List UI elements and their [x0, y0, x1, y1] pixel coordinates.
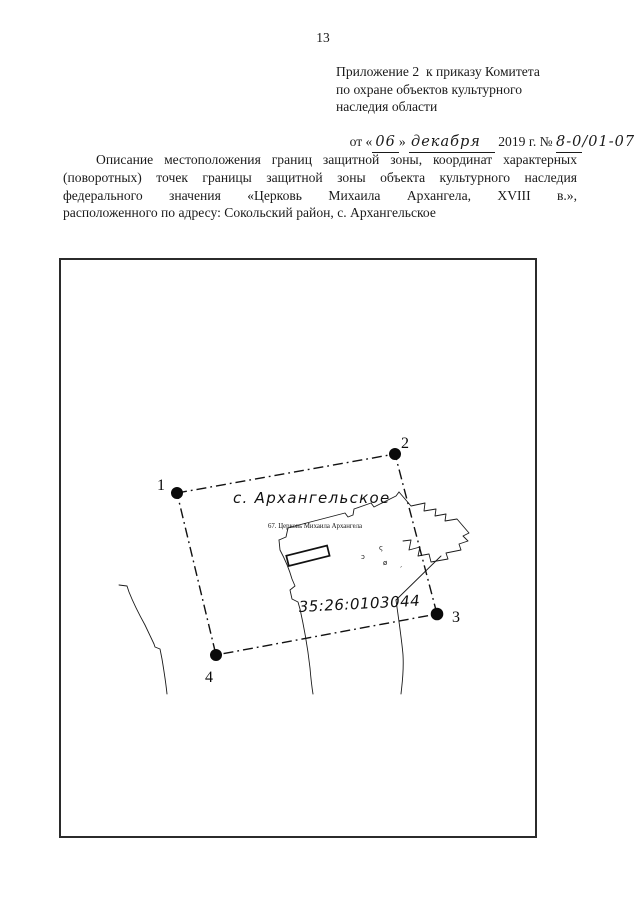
date-prefix: от «: [350, 134, 373, 149]
document-page: { "page": { "number": "13" }, "appendix"…: [0, 0, 640, 905]
description-line: федерального значения «Церковь Михаила А…: [63, 187, 577, 205]
page-number: 13: [0, 30, 640, 46]
map-symbol: ˏ: [399, 560, 403, 568]
village-name-label: с. Архангельское: [233, 489, 391, 507]
boundary-point-4-label: 4: [205, 669, 213, 686]
boundary-point-4-dot: [211, 650, 222, 661]
boundary-point-2-dot: [390, 449, 401, 460]
church-building-footprint: [286, 546, 329, 566]
map-scheme: ς ɔ ø ˏ 1 2 3 4 с. Архангельское 67. Цер…: [59, 258, 537, 838]
plot-boundary-right-curve: [396, 600, 403, 694]
date-year: 2019 г. №: [495, 134, 556, 149]
boundary-point-3-label: 3: [452, 609, 460, 626]
date-close-quote: »: [399, 134, 409, 149]
description-line: (поворотных) точек границы защитной зоны…: [63, 169, 577, 187]
appendix-line: Приложение 2 к приказу Комитета: [336, 63, 628, 81]
boundary-point-3-dot: [431, 608, 443, 620]
boundary-point-2-label: 2: [401, 435, 409, 452]
handwritten-order-number-rest: /01-07: [582, 134, 635, 152]
description-line: расположенного по адресу: Сокольский рай…: [63, 204, 577, 222]
road-line-left: [119, 585, 167, 694]
description-line: Описание местоположения границ защитной …: [63, 151, 577, 169]
map-symbol: ς: [379, 544, 383, 552]
boundary-point-1-dot: [172, 488, 183, 499]
map-drawing: ς ɔ ø ˏ 1 2 3 4 с. Архангельское 67. Цер…: [61, 260, 535, 836]
map-symbol: ɔ: [361, 553, 365, 561]
map-symbol: ø: [383, 559, 388, 567]
appendix-line: по охране объектов культурного: [336, 81, 628, 99]
appendix-line: наследия области: [336, 98, 628, 116]
description-paragraph: Описание местоположения границ защитной …: [63, 151, 577, 222]
church-name-label: 67. Церковь Михаила Архангела: [268, 523, 362, 530]
cadastral-number-label: 35:26:0103044: [298, 592, 420, 616]
boundary-point-1-label: 1: [157, 477, 165, 494]
parcel-outline-stair: [399, 492, 469, 562]
